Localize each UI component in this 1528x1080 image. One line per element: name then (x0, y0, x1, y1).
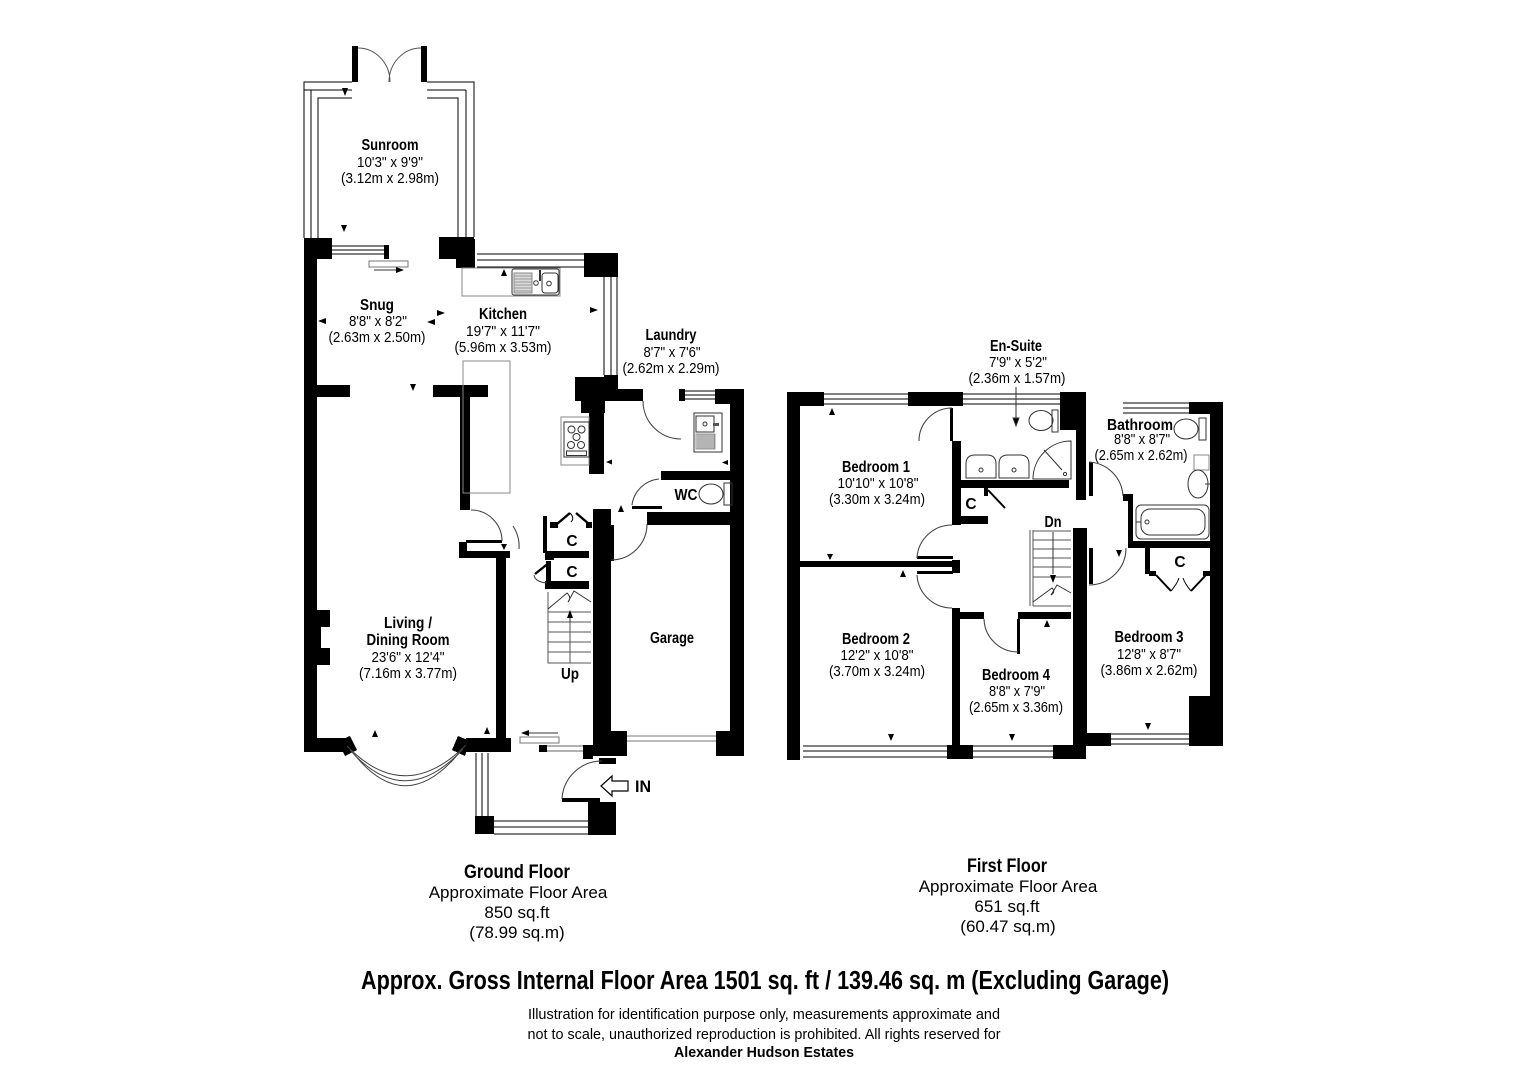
svg-text:En-Suite: En-Suite (990, 338, 1042, 355)
svg-text:C: C (566, 564, 577, 581)
svg-text:(78.99 sq.m): (78.99 sq.m) (469, 923, 564, 942)
svg-text:10'3" x 9'9": 10'3" x 9'9" (357, 155, 423, 171)
svg-text:Snug: Snug (360, 297, 394, 314)
svg-text:8'7" x 7'6": 8'7" x 7'6" (644, 345, 701, 361)
svg-text:19'7" x 11'7": 19'7" x 11'7" (466, 324, 540, 340)
svg-text:(60.47 sq.m): (60.47 sq.m) (960, 917, 1055, 936)
svg-text:Ground Floor: Ground Floor (464, 862, 571, 883)
svg-text:7'9" x 5'2": 7'9" x 5'2" (989, 355, 1047, 371)
svg-text:(2.65m x 3.36m): (2.65m x 3.36m) (969, 700, 1063, 716)
svg-text:WC: WC (675, 487, 698, 504)
svg-text:8'8" x 8'2": 8'8" x 8'2" (349, 314, 407, 330)
svg-text:10'10" x 10'8": 10'10" x 10'8" (838, 476, 919, 492)
svg-text:Bedroom 4: Bedroom 4 (982, 667, 1050, 684)
svg-text:(3.12m x 2.98m): (3.12m x 2.98m) (341, 171, 439, 187)
svg-text:(5.96m x 3.53m): (5.96m x 3.53m) (455, 340, 552, 356)
svg-text:(3.70m x 3.24m): (3.70m x 3.24m) (829, 664, 925, 680)
svg-text:12'8" x 8'7": 12'8" x 8'7" (1117, 647, 1181, 663)
svg-text:(2.65m x 2.62m): (2.65m x 2.62m) (1095, 448, 1188, 464)
svg-text:Kitchen: Kitchen (479, 306, 527, 323)
svg-text:Dining Room: Dining Room (367, 632, 450, 649)
svg-text:850 sq.ft: 850 sq.ft (484, 903, 549, 922)
svg-text:IN: IN (635, 777, 651, 796)
svg-text:(3.86m x 2.62m): (3.86m x 2.62m) (1101, 663, 1198, 679)
svg-text:Laundry: Laundry (646, 327, 697, 344)
svg-text:not to scale, unauthorized rep: not to scale, unauthorized reproduction … (528, 1026, 1001, 1043)
svg-text:23'6" x 12'4": 23'6" x 12'4" (372, 650, 445, 666)
svg-text:Up: Up (561, 666, 579, 683)
svg-text:C: C (566, 533, 577, 550)
svg-text:C: C (1174, 554, 1185, 571)
svg-text:8'8" x 7'9": 8'8" x 7'9" (989, 684, 1045, 700)
svg-text:651 sq.ft: 651 sq.ft (974, 897, 1039, 916)
svg-text:(2.36m x 1.57m): (2.36m x 1.57m) (969, 371, 1066, 387)
svg-text:Alexander Hudson Estates: Alexander Hudson Estates (674, 1044, 854, 1061)
svg-text:Living /: Living / (384, 615, 433, 632)
svg-text:(3.30m x 3.24m): (3.30m x 3.24m) (829, 492, 925, 508)
svg-text:Approx. Gross Internal Floor A: Approx. Gross Internal Floor Area 1501 s… (361, 967, 1169, 995)
svg-text:(2.62m x 2.29m): (2.62m x 2.29m) (623, 361, 720, 377)
svg-text:Approximate Floor Area: Approximate Floor Area (429, 883, 608, 902)
svg-text:Sunroom: Sunroom (362, 137, 419, 154)
svg-text:12'2" x 10'8": 12'2" x 10'8" (841, 648, 914, 664)
svg-text:Approximate Floor Area: Approximate Floor Area (919, 877, 1098, 896)
svg-text:Bedroom 1: Bedroom 1 (842, 459, 910, 476)
svg-text:Dn: Dn (1045, 514, 1062, 531)
svg-text:Bedroom 3: Bedroom 3 (1115, 629, 1184, 646)
svg-text:8'8" x 8'7": 8'8" x 8'7" (1114, 432, 1170, 448)
svg-text:(7.16m x 3.77m): (7.16m x 3.77m) (359, 666, 457, 682)
svg-text:C: C (965, 496, 976, 513)
svg-text:Garage: Garage (650, 630, 694, 647)
svg-text:Illustration for identificatio: Illustration for identification purpose … (528, 1006, 1000, 1023)
svg-text:(2.63m x 2.50m): (2.63m x 2.50m) (329, 330, 426, 346)
svg-text:First Floor: First Floor (967, 856, 1048, 877)
svg-text:Bedroom 2: Bedroom 2 (842, 631, 910, 648)
